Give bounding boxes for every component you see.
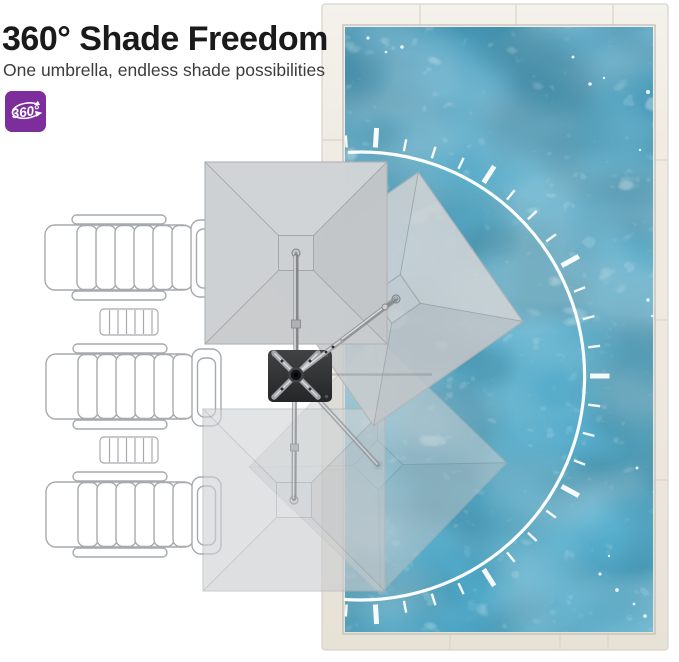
lounge-chair-row-3 xyxy=(46,472,221,557)
page-subtitle: One umbrella, endless shade possibilitie… xyxy=(3,60,333,81)
umbrella-base xyxy=(268,341,341,402)
rotation-360-icon: 360° xyxy=(5,91,46,132)
arc-tick xyxy=(375,605,376,625)
arc-tick xyxy=(346,136,347,148)
badge-label: 360° xyxy=(11,102,42,121)
page-title: 360° Shade Freedom xyxy=(2,20,332,59)
side-table-1 xyxy=(100,309,158,335)
scene-svg xyxy=(0,0,679,662)
product-illustration: 360° Shade Freedom One umbrella, endless… xyxy=(0,0,679,662)
side-table-2 xyxy=(100,437,158,463)
lounge-chair-row-2 xyxy=(46,344,221,429)
arc-tick xyxy=(588,405,600,407)
rotation-badge: 360° xyxy=(5,91,46,132)
arc-tick xyxy=(346,605,347,617)
arc-tick xyxy=(375,128,376,148)
arc-tick xyxy=(588,346,600,348)
lounge-chair-row-1 xyxy=(45,215,220,300)
